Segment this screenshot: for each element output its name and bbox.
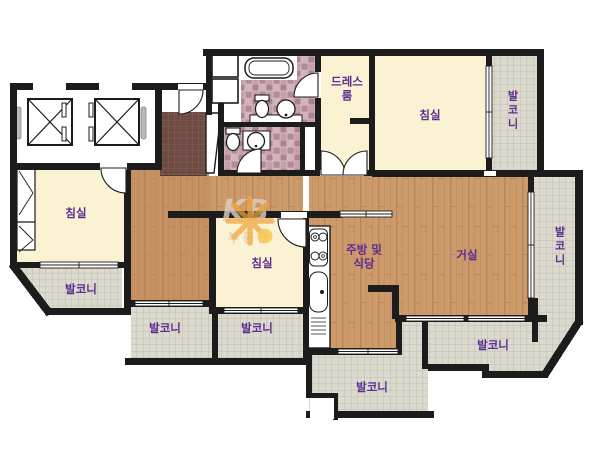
window	[528, 192, 534, 298]
label-bedroom-left: 침실	[65, 207, 86, 221]
closet-box	[212, 79, 238, 103]
toilet-icon	[255, 95, 269, 118]
kitchen-counter	[307, 226, 330, 348]
stove-icon	[310, 229, 328, 266]
label-dress-room: 드레스룸	[330, 75, 364, 102]
toilet-icon	[226, 128, 240, 151]
window	[338, 349, 398, 354]
label-balcony-bottom-right: 발코니	[477, 339, 509, 353]
label-balcony-top-right: 발코니	[507, 89, 520, 130]
label-balcony-right: 발코니	[554, 225, 567, 266]
window	[135, 301, 203, 306]
entry-floor	[160, 112, 207, 175]
label-bedroom-center: 침실	[251, 257, 272, 271]
closet-box	[212, 53, 238, 77]
window	[340, 211, 392, 217]
floor-plan: KB 부동산 드레스룸 침실 발코니 침실 발코니 침실 발코니 발코니 주방 …	[0, 0, 600, 449]
window	[486, 66, 492, 158]
corridor-shade	[131, 168, 209, 307]
window	[224, 308, 298, 313]
label-balcony-bottom-center: 발코니	[356, 381, 388, 395]
label-balcony-bottom-mid: 발코니	[241, 322, 273, 336]
elevator-icon	[89, 99, 146, 145]
floor-plan-drawing	[0, 0, 600, 449]
washbasin-icon	[277, 100, 295, 118]
window	[468, 316, 525, 321]
label-balcony-left: 발코니	[65, 283, 97, 297]
window	[406, 316, 464, 321]
closet-bifold	[17, 168, 35, 252]
label-bedroom-top: 침실	[419, 109, 440, 123]
window	[40, 262, 118, 268]
bathtub-icon	[245, 58, 293, 78]
door-arc	[179, 90, 203, 114]
kitchen-sink-icon	[310, 272, 328, 312]
label-living-room: 거실	[456, 249, 477, 263]
washbasin-icon	[248, 133, 265, 150]
label-balcony-bottom-left: 발코니	[149, 322, 181, 336]
label-kitchen-dining: 주방 및 식당	[336, 243, 392, 270]
